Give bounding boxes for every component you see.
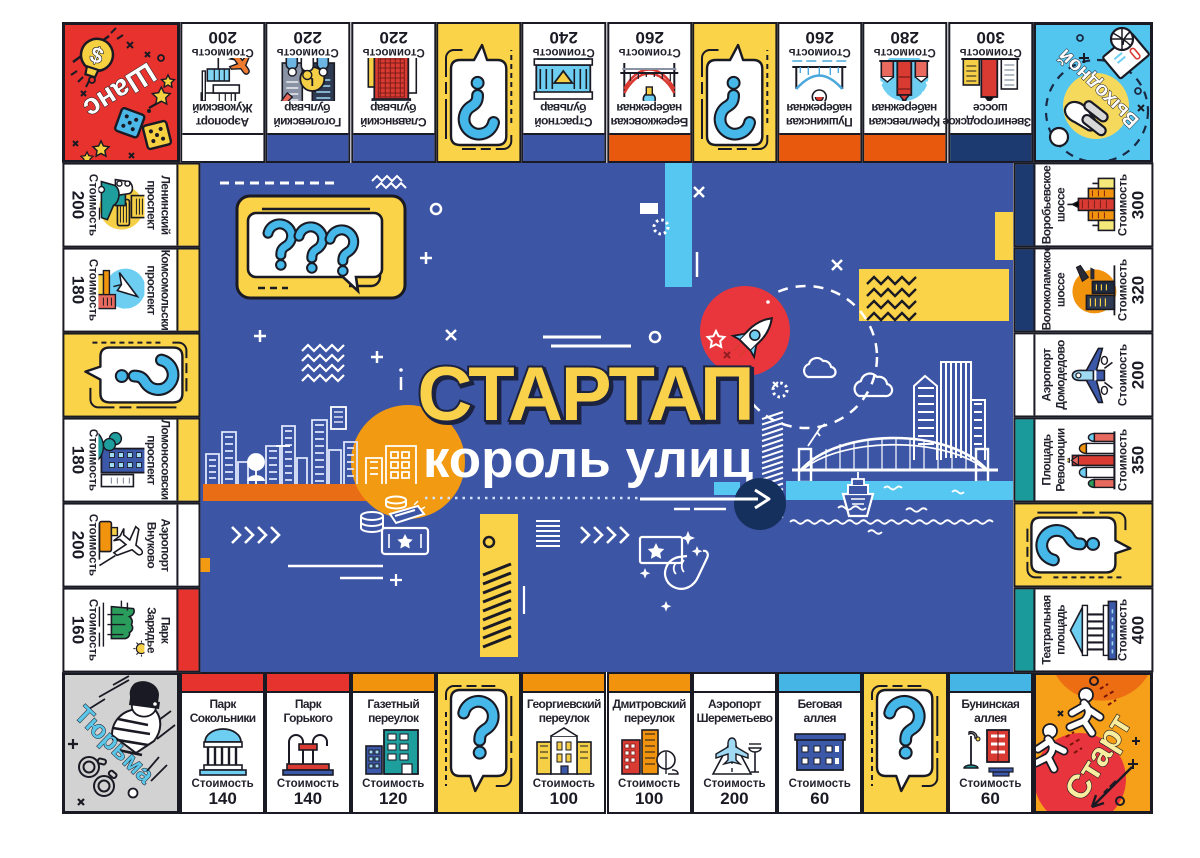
svg-text:СТАРТАП: СТАРТАП xyxy=(417,352,752,437)
svg-text:король улиц: король улиц xyxy=(423,430,754,489)
